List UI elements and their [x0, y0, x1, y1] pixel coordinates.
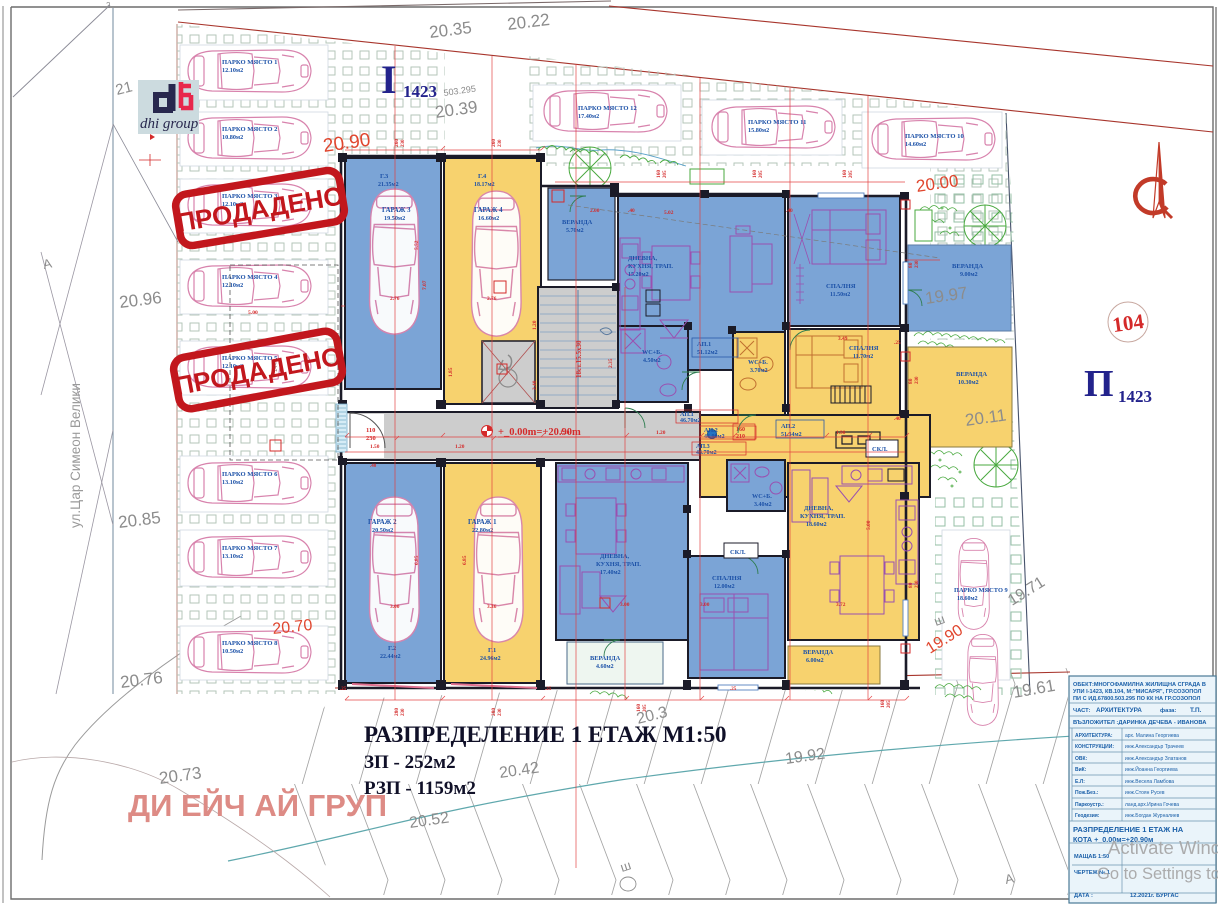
- svg-text:ДНЕВНА,: ДНЕВНА,: [804, 505, 833, 512]
- svg-text:ВЪЗЛОЖИТЕЛ :ДАРИНКА ДЕЧЕВА - И: ВЪЗЛОЖИТЕЛ :ДАРИНКА ДЕЧЕВА - ИВАНОВА: [1073, 720, 1207, 726]
- svg-text:110: 110: [366, 427, 375, 434]
- svg-text:РАЗПРЕДЕЛЕНИЕ 1 ЕТАЖ М1:50: РАЗПРЕДЕЛЕНИЕ 1 ЕТАЖ М1:50: [364, 722, 727, 747]
- svg-text:Пож.Без.:: Пож.Без.:: [1075, 790, 1099, 796]
- svg-text:2.40: 2.40: [532, 380, 538, 390]
- svg-text:230: 230: [366, 435, 376, 442]
- svg-text:3.36: 3.36: [487, 604, 497, 610]
- svg-text:Геодезия:: Геодезия:: [1075, 813, 1100, 819]
- svg-text:3.00: 3.00: [390, 604, 400, 610]
- svg-text:Паркоустр.:: Паркоустр.:: [1075, 802, 1104, 808]
- svg-text:160: 160: [752, 170, 758, 178]
- svg-text:ГАРАЖ 1: ГАРАЖ 1: [468, 519, 497, 526]
- svg-text:230: 230: [915, 260, 920, 268]
- svg-text:КУХНЯ, ТРАП.: КУХНЯ, ТРАП.: [596, 561, 641, 568]
- svg-text:РАЗПРЕДЕЛЕНИЕ 1 ЕТАЖ НА: РАЗПРЕДЕЛЕНИЕ 1 ЕТАЖ НА: [1073, 825, 1184, 834]
- svg-text:.40: .40: [786, 208, 793, 214]
- svg-text:19.50м2: 19.50м2: [384, 215, 405, 222]
- svg-text:ДНЕВНА,: ДНЕВНА,: [628, 255, 657, 262]
- svg-text:фаза:: фаза:: [1160, 707, 1176, 714]
- svg-text:104: 104: [1111, 309, 1146, 337]
- svg-text:3.72: 3.72: [836, 602, 846, 608]
- svg-text:1.20: 1.20: [656, 430, 666, 436]
- svg-text:12.10м2: 12.10м2: [222, 282, 243, 289]
- svg-text:205: 205: [663, 170, 668, 178]
- svg-text:ПАРКО МЯСТО 12: ПАРКО МЯСТО 12: [578, 105, 637, 112]
- svg-text:6.85: 6.85: [414, 555, 420, 565]
- svg-text:205: 205: [849, 170, 854, 178]
- svg-text:.40: .40: [370, 464, 377, 469]
- svg-text:АП.2: АП.2: [704, 427, 718, 434]
- svg-text:18.60м2: 18.60м2: [806, 522, 827, 528]
- svg-text:ГАРАЖ 2: ГАРАЖ 2: [368, 519, 397, 526]
- svg-text:24.96м2: 24.96м2: [480, 656, 501, 662]
- svg-text:.25: .25: [894, 340, 901, 346]
- svg-text:ВиК:: ВиК:: [1075, 767, 1087, 773]
- svg-text:5.00: 5.00: [866, 520, 872, 530]
- svg-text:9.00м2: 9.00м2: [960, 272, 978, 278]
- svg-text:280: 280: [394, 708, 400, 716]
- svg-text:10.50м2: 10.50м2: [222, 648, 243, 655]
- svg-text:инж.Богдан Журналиев: инж.Богдан Журналиев: [1125, 813, 1180, 819]
- svg-text:1.20: 1.20: [455, 444, 465, 450]
- svg-text:МАЩАБ 1:50: МАЩАБ 1:50: [1074, 854, 1109, 860]
- svg-text:11.70м2: 11.70м2: [853, 354, 873, 360]
- svg-text:инж.Александър Трачеев: инж.Александър Трачеев: [1125, 744, 1184, 750]
- svg-text:3.40м2: 3.40м2: [754, 502, 772, 508]
- svg-text:АП.1: АП.1: [697, 341, 711, 348]
- svg-text:ВЕРАНДА: ВЕРАНДА: [562, 219, 593, 226]
- svg-text:ОВК:: ОВК:: [1075, 756, 1088, 762]
- svg-text:7.07: 7.07: [422, 280, 428, 290]
- svg-text:18.17м2: 18.17м2: [474, 182, 495, 188]
- svg-text:АРХИТЕКТУРА:: АРХИТЕКТУРА:: [1075, 733, 1113, 739]
- svg-text:15.80м2: 15.80м2: [748, 127, 769, 134]
- svg-text:3.70м2: 3.70м2: [750, 368, 768, 374]
- svg-text:ВЕРАНДА: ВЕРАНДА: [590, 655, 621, 662]
- svg-text:3.00: 3.00: [620, 602, 630, 608]
- svg-text:22.80м2: 22.80м2: [472, 527, 493, 534]
- svg-text:.25: .25: [340, 687, 347, 692]
- svg-text:Е.Л:: Е.Л:: [1075, 779, 1085, 785]
- svg-text:dhi group: dhi group: [140, 116, 199, 132]
- svg-text:ПАРКО МЯСТО 4: ПАРКО МЯСТО 4: [222, 274, 278, 281]
- svg-text:ЗП - 252м2: ЗП - 252м2: [364, 752, 456, 773]
- svg-text:ПАРКО МЯСТО 6: ПАРКО МЯСТО 6: [222, 471, 278, 478]
- svg-text:инж.Александър Златанов: инж.Александър Златанов: [1125, 756, 1187, 762]
- svg-text:WC+Б.: WC+Б.: [752, 493, 772, 500]
- svg-text:260: 260: [394, 139, 400, 147]
- svg-text:ПАРКО МЯСТО 2: ПАРКО МЯСТО 2: [222, 126, 278, 133]
- svg-text:ОБЕКТ:МНОГОФАМИЛНА ЖИЛИЩНА СГР: ОБЕКТ:МНОГОФАМИЛНА ЖИЛИЩНА СГРАДА В: [1073, 682, 1206, 688]
- svg-text:2.35: 2.35: [608, 358, 614, 368]
- svg-text:230: 230: [498, 708, 503, 716]
- svg-text:ВЕРАНДА: ВЕРАНДА: [956, 371, 987, 378]
- svg-text:1.90: 1.90: [836, 430, 846, 436]
- svg-text:5.52: 5.52: [414, 240, 420, 250]
- svg-text:4.60м2: 4.60м2: [596, 664, 614, 670]
- svg-text:160: 160: [736, 427, 745, 433]
- svg-text:2: 2: [106, 1, 111, 10]
- svg-text:КОНСТРУКЦИИ:: КОНСТРУКЦИИ:: [1075, 744, 1114, 750]
- svg-text:10.80м2: 10.80м2: [222, 134, 243, 141]
- svg-text:13.10м2: 13.10м2: [222, 553, 243, 560]
- svg-text:17.40м2: 17.40м2: [578, 113, 599, 120]
- svg-text:КУХНЯ, ТРАП.: КУХНЯ, ТРАП.: [800, 513, 845, 520]
- svg-text:СКЛ.: СКЛ.: [730, 549, 746, 556]
- svg-text:ДАТА :: ДАТА :: [1074, 893, 1093, 899]
- svg-text:инж.Стоян Русев: инж.Стоян Русев: [1125, 790, 1165, 796]
- svg-text:ПАРКО МЯСТО 9: ПАРКО МЯСТО 9: [954, 587, 1008, 594]
- svg-text:WC+Б.: WC+Б.: [748, 359, 768, 366]
- svg-text:18.60м2: 18.60м2: [957, 596, 978, 602]
- svg-text:.40: .40: [894, 416, 901, 422]
- svg-text:Г.4: Г.4: [478, 173, 487, 180]
- svg-text:Г.3: Г.3: [380, 173, 389, 180]
- svg-text:УПИ I-1423, КВ.104, М:"МИСАРЯ": УПИ I-1423, КВ.104, М:"МИСАРЯ", ГР.СОЗОП…: [1073, 689, 1202, 695]
- svg-text:ПАРКО МЯСТО 10: ПАРКО МЯСТО 10: [905, 133, 964, 140]
- svg-text:ПАРКО МЯСТО 1: ПАРКО МЯСТО 1: [222, 59, 277, 66]
- svg-text:160: 160: [842, 170, 848, 178]
- svg-text:3.49: 3.49: [838, 336, 848, 342]
- svg-text:43.70м2: 43.70м2: [696, 450, 717, 456]
- svg-text:СПАЛНЯ: СПАЛНЯ: [849, 345, 879, 352]
- svg-text:12.10м2: 12.10м2: [222, 67, 243, 74]
- svg-text:46.70м2: 46.70м2: [680, 418, 701, 424]
- svg-text:Go to Settings to activate: Go to Settings to activate: [1097, 865, 1218, 883]
- svg-text:ПАРКО МЯСТО 7: ПАРКО МЯСТО 7: [222, 545, 278, 552]
- svg-text:АП.1: АП.1: [680, 411, 694, 418]
- svg-text:260: 260: [491, 139, 497, 147]
- svg-text:ДИ ЕЙЧ АЙ ГРУП: ДИ ЕЙЧ АЙ ГРУП: [128, 787, 387, 823]
- svg-text:1.50: 1.50: [370, 444, 380, 450]
- svg-text:ПАРКО МЯСТО 11: ПАРКО МЯСТО 11: [748, 119, 806, 126]
- svg-text:1423: 1423: [403, 82, 437, 101]
- svg-text:80: 80: [908, 378, 914, 384]
- svg-text:230: 230: [498, 139, 503, 147]
- svg-text:КУХНЯ, ТРАП.: КУХНЯ, ТРАП.: [628, 263, 673, 270]
- svg-text:5.70м2: 5.70м2: [566, 228, 584, 234]
- svg-text:ЧАСТ:: ЧАСТ:: [1073, 708, 1091, 714]
- svg-text:.25: .25: [545, 687, 552, 692]
- svg-text:ланд.арх.Ирина Гочева: ланд.арх.Ирина Гочева: [1125, 802, 1179, 808]
- svg-text:6.85: 6.85: [462, 555, 468, 565]
- svg-text:СПАЛНЯ: СПАЛНЯ: [712, 575, 742, 582]
- svg-text:14.60м2: 14.60м2: [905, 141, 926, 148]
- svg-text:3.00: 3.00: [700, 602, 710, 608]
- svg-text:5.02: 5.02: [664, 210, 674, 216]
- svg-text:230: 230: [915, 580, 920, 588]
- svg-text:2.76: 2.76: [390, 296, 400, 302]
- svg-text:арх. Малина Георгиева: арх. Малина Георгиева: [1125, 733, 1179, 739]
- svg-text:2.76: 2.76: [487, 296, 497, 302]
- svg-text:15.20м2: 15.20м2: [628, 272, 649, 278]
- svg-text:инж.Йоанна Георгиева: инж.Йоанна Георгиева: [1125, 765, 1178, 773]
- svg-text:280: 280: [491, 708, 497, 716]
- svg-text:205: 205: [759, 170, 764, 178]
- svg-text:АРХИТЕКТУРА: АРХИТЕКТУРА: [1096, 707, 1142, 714]
- svg-text:12.00м2: 12.00м2: [714, 584, 735, 590]
- svg-text:12.2021г. БУРГАС: 12.2021г. БУРГАС: [1130, 893, 1179, 899]
- svg-text:АП.3: АП.3: [696, 443, 710, 450]
- svg-text:I: I: [381, 57, 397, 102]
- svg-text:20.50м2: 20.50м2: [372, 527, 393, 534]
- svg-text:ПИ С ИД.67800.503.295 ПО КК НА: ПИ С ИД.67800.503.295 ПО КК НА ГР.СОЗОПО…: [1073, 696, 1200, 702]
- svg-text:Т.П.: Т.П.: [1190, 707, 1202, 714]
- svg-text:160: 160: [656, 170, 662, 178]
- svg-text:205: 205: [887, 700, 892, 708]
- svg-text:11.50м2: 11.50м2: [830, 292, 850, 298]
- svg-text:160: 160: [880, 700, 886, 708]
- svg-text:230: 230: [401, 708, 406, 716]
- svg-text:16.60м2: 16.60м2: [478, 215, 499, 222]
- svg-text:22.44м2: 22.44м2: [380, 654, 401, 660]
- svg-text:ВЕРАНДА: ВЕРАНДА: [952, 263, 983, 270]
- svg-text:21.35м2: 21.35м2: [378, 182, 399, 188]
- svg-text:5.00: 5.00: [248, 310, 258, 316]
- svg-text:230: 230: [915, 376, 920, 384]
- svg-text:СПАЛНЯ: СПАЛНЯ: [826, 283, 856, 290]
- svg-text:ВЕРАНДА: ВЕРАНДА: [803, 649, 834, 656]
- svg-text:инж.Весела Ламбова: инж.Весела Ламбова: [1125, 779, 1174, 785]
- svg-text:ПАРКО МЯСТО 8: ПАРКО МЯСТО 8: [222, 640, 278, 647]
- svg-text:4.50м2: 4.50м2: [643, 358, 661, 364]
- svg-text:80: 80: [908, 262, 914, 268]
- svg-text:230: 230: [401, 139, 406, 147]
- svg-text:ГАРАЖ 3: ГАРАЖ 3: [382, 207, 411, 214]
- svg-text:1423: 1423: [1118, 387, 1152, 406]
- svg-text:ул.Цар Симеон Велики: ул.Цар Симеон Велики: [68, 383, 83, 528]
- svg-text:АП.2: АП.2: [781, 423, 795, 430]
- svg-text:1.85: 1.85: [448, 367, 454, 377]
- svg-text:П: П: [1084, 363, 1114, 405]
- svg-text:1.20: 1.20: [560, 430, 570, 436]
- svg-text:Activate Windows: Activate Windows: [1108, 837, 1218, 858]
- svg-text:.40: .40: [628, 208, 635, 214]
- svg-text:17.40м2: 17.40м2: [600, 570, 621, 576]
- svg-text:WC+Б.: WC+Б.: [642, 349, 662, 356]
- svg-text:ГАРАЖ 4: ГАРАЖ 4: [474, 207, 503, 214]
- svg-text:13.10м2: 13.10м2: [222, 479, 243, 486]
- svg-text:1.20: 1.20: [532, 320, 538, 330]
- svg-text:10.30м2: 10.30м2: [958, 380, 979, 386]
- svg-text:80: 80: [908, 582, 914, 588]
- svg-text:.25: .25: [730, 687, 737, 692]
- svg-text:6.00м2: 6.00м2: [806, 658, 824, 664]
